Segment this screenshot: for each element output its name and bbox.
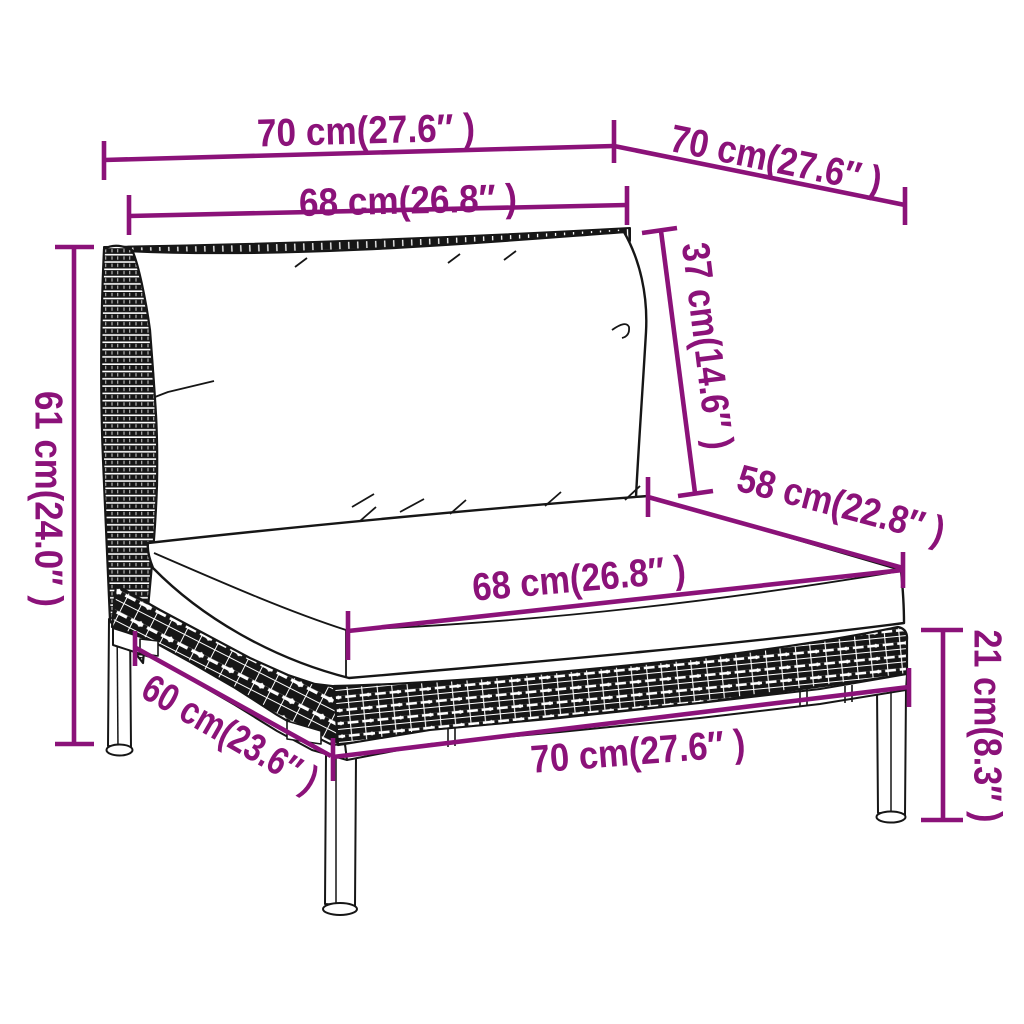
svg-text:61 cm(24.0″ ): 61 cm(24.0″ ) <box>27 391 70 607</box>
svg-text:70 cm(27.6″ ): 70 cm(27.6″ ) <box>256 106 475 155</box>
svg-text:21 cm(8.3″ ): 21 cm(8.3″ ) <box>966 630 1009 823</box>
svg-text:68 cm(26.8″ ): 68 cm(26.8″ ) <box>299 177 518 225</box>
